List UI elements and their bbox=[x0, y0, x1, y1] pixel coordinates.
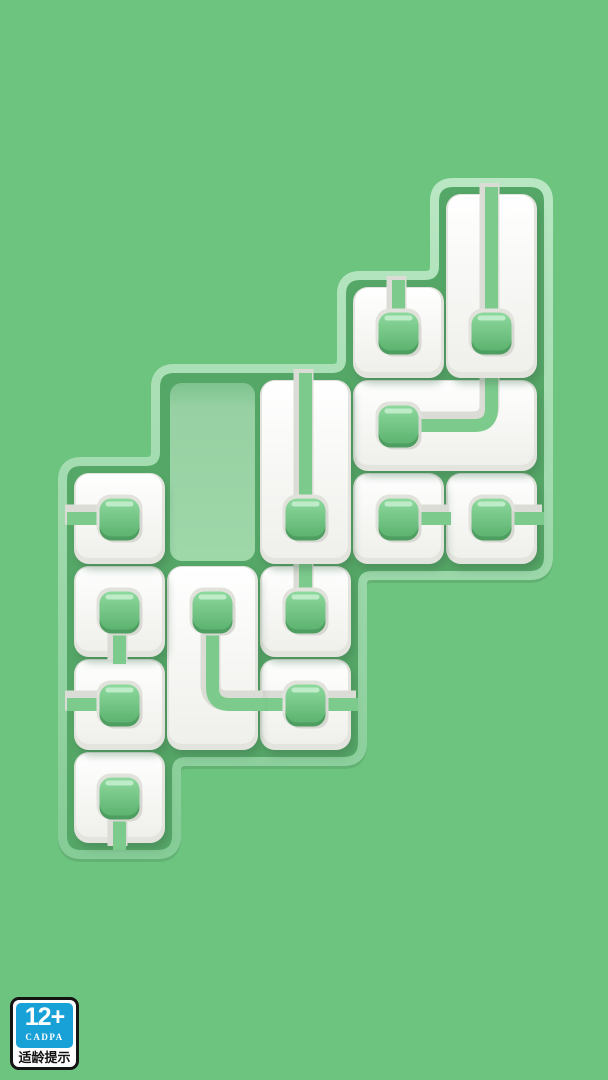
age-rating-badge: 12+ CADPA 适龄提示 bbox=[10, 997, 79, 1070]
game-screen: 12+ CADPA 适龄提示 bbox=[0, 0, 608, 1080]
puzzle-tile[interactable] bbox=[74, 566, 165, 664]
node-highlight bbox=[106, 688, 134, 693]
puzzle-tile[interactable] bbox=[260, 555, 351, 657]
node-highlight bbox=[478, 502, 506, 507]
puzzle-tile[interactable] bbox=[353, 473, 451, 564]
node-highlight bbox=[292, 688, 320, 693]
node-highlight bbox=[385, 409, 413, 414]
puzzle-tile[interactable] bbox=[167, 566, 265, 750]
node-highlight bbox=[478, 316, 506, 321]
node-highlight bbox=[199, 595, 227, 600]
puzzle-tile[interactable] bbox=[65, 659, 165, 750]
puzzle-tile[interactable] bbox=[353, 369, 537, 471]
node-highlight bbox=[385, 502, 413, 507]
age-rating-panel: 12+ CADPA bbox=[16, 1003, 73, 1048]
puzzle-tile[interactable] bbox=[353, 276, 444, 378]
puzzle-tile[interactable] bbox=[446, 473, 544, 564]
puzzle-tile[interactable] bbox=[65, 473, 165, 564]
node-highlight bbox=[106, 502, 134, 507]
age-rating-org: CADPA bbox=[16, 1032, 73, 1043]
node-highlight bbox=[106, 781, 134, 786]
age-rating-value: 12+ bbox=[16, 1003, 73, 1032]
puzzle-tile[interactable] bbox=[446, 183, 537, 378]
puzzle-tile[interactable] bbox=[260, 369, 351, 564]
age-rating-caption: 适龄提示 bbox=[18, 1048, 70, 1067]
empty-slot[interactable] bbox=[170, 383, 255, 561]
node-highlight bbox=[106, 595, 134, 600]
puzzle-board bbox=[0, 0, 608, 1080]
node-highlight bbox=[292, 595, 320, 600]
node-highlight bbox=[385, 316, 413, 321]
puzzle-tile[interactable] bbox=[251, 659, 358, 750]
puzzle-tile[interactable] bbox=[74, 752, 165, 850]
node-highlight bbox=[292, 502, 320, 507]
